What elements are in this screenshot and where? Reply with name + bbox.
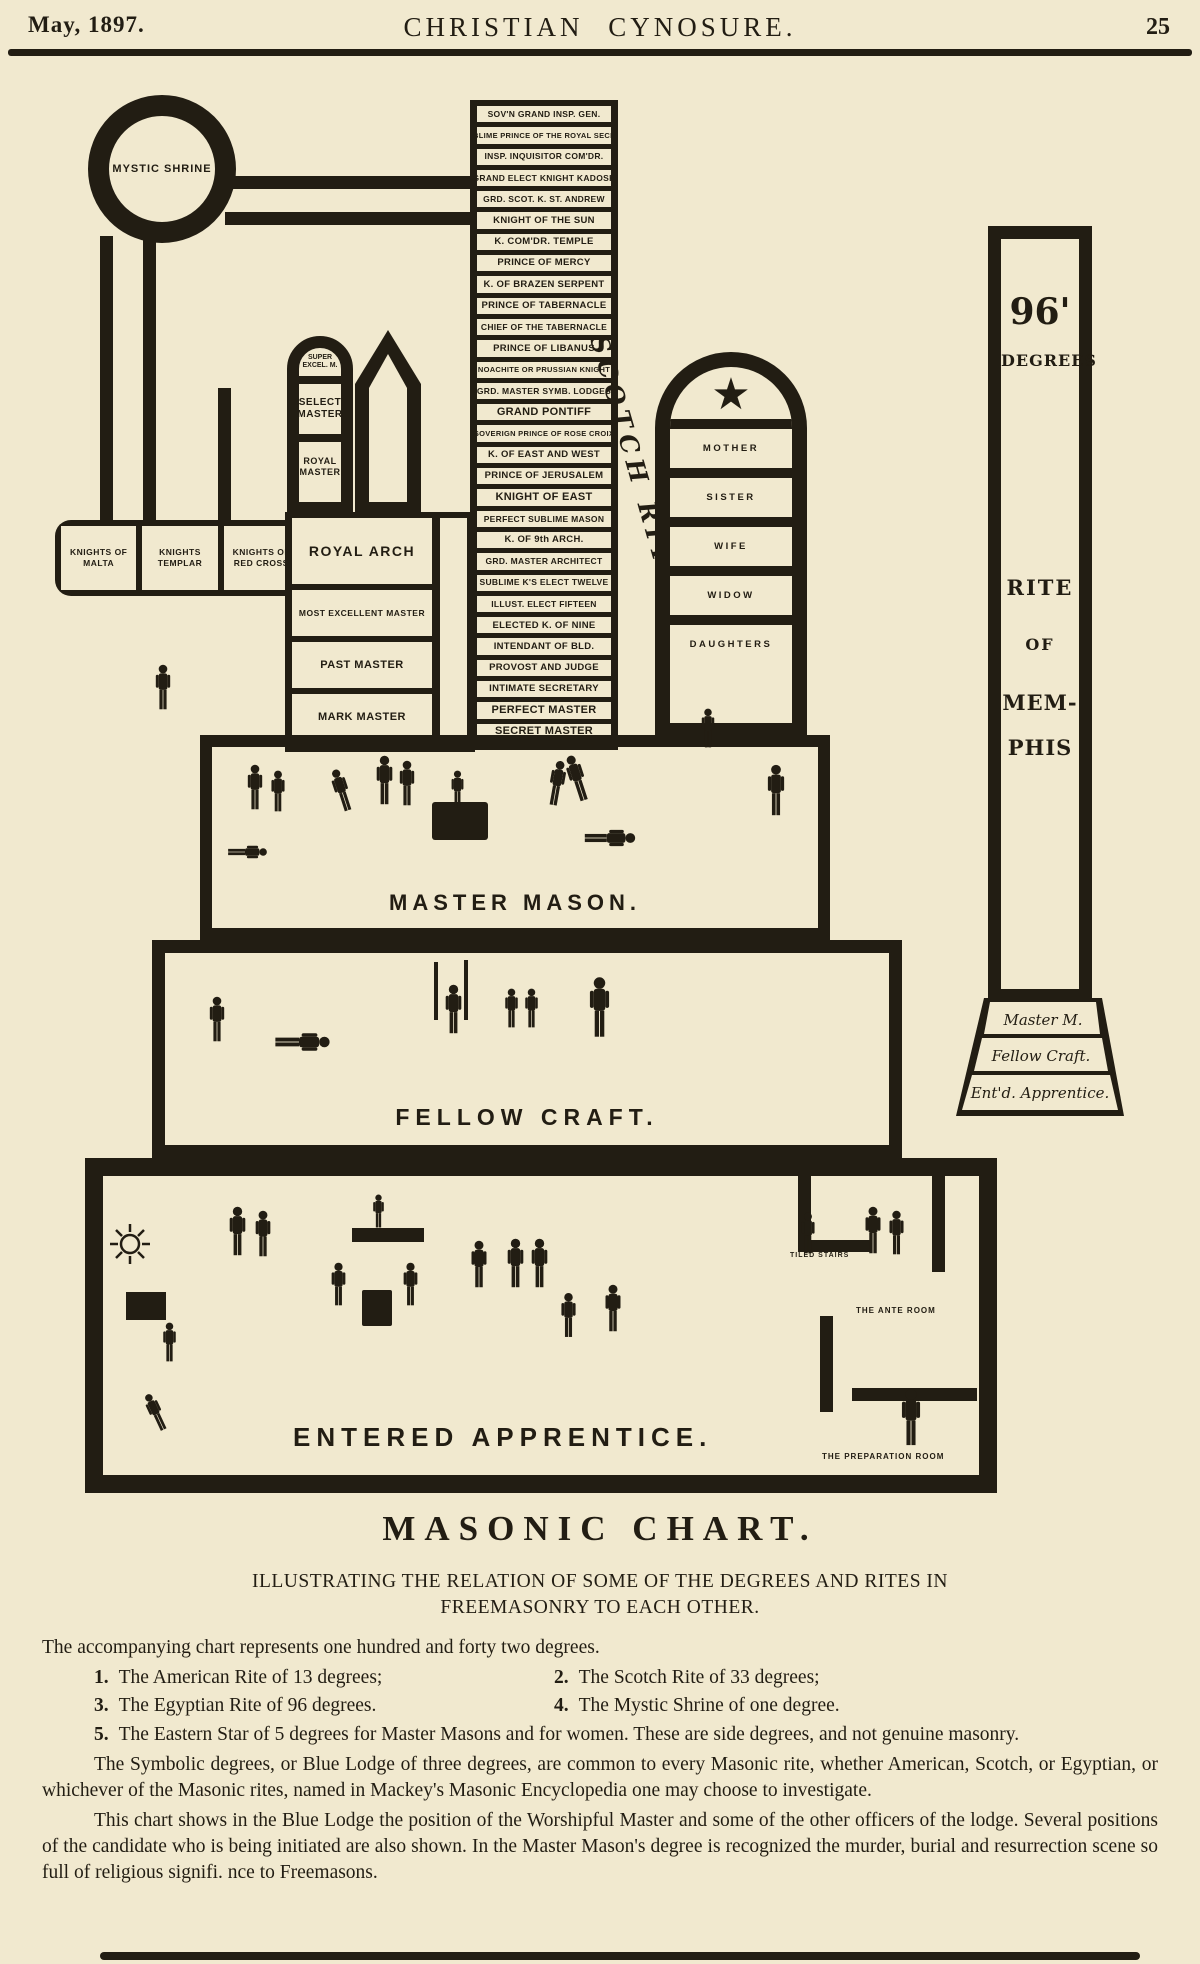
- sun-icon: [108, 1222, 152, 1266]
- item-number: 5.: [94, 1724, 119, 1745]
- person-figure-illustration: [604, 1284, 622, 1332]
- connector-bar: [218, 388, 231, 525]
- fellow-craft-level: FELLOW CRAFT.: [152, 940, 902, 1158]
- item-text: The American Rite of 13 degrees;: [119, 1667, 383, 1688]
- mystic-shrine-ring: MYSTIC SHRINE: [88, 95, 236, 243]
- publication-title: CHRISTIAN CYNOSURE.: [0, 12, 1200, 43]
- scotch-degree-box: GRD. MASTER SYMB. LODGES: [477, 383, 611, 399]
- scotch-degree-box: PERFECT MASTER: [477, 702, 611, 718]
- room-label-ante-room: THE ANTE ROOM: [856, 1306, 936, 1315]
- scotch-degree-box: ELECTED K. OF NINE: [477, 617, 611, 633]
- person-figure-illustration: [154, 664, 172, 710]
- body-paragraph: The Symbolic degrees, or Blue Lodge of t…: [42, 1752, 1158, 1804]
- base-step-label: Master M.: [1003, 1011, 1083, 1029]
- room-wall: [820, 1316, 833, 1412]
- eastern-star-degree-box: SISTER: [670, 468, 792, 517]
- connector-bar: [225, 176, 470, 189]
- degree-box: PAST MASTER: [292, 642, 432, 688]
- lying-figure-illustration: [275, 1032, 331, 1053]
- scotch-rite-tower: SOV'N GRAND INSP. GEN.SUBLIME PRINCE OF …: [470, 100, 618, 750]
- eastern-star-degree-box: MOTHER: [670, 419, 792, 468]
- scotch-degree-box: INSP. INQUISITOR COM'DR.: [477, 149, 611, 165]
- item-number: 2.: [554, 1667, 579, 1688]
- rite-list: 1.The American Rite of 13 degrees; 2.The…: [42, 1663, 1158, 1719]
- scotch-degree-box: PERFECT SUBLIME MASON: [477, 511, 611, 527]
- person-figure-illustration: [270, 770, 286, 812]
- item-number: 3.: [94, 1695, 119, 1716]
- scotch-degree-box: GRD. MASTER ARCHITECT: [477, 553, 611, 569]
- master-mason-label: MASTER MASON.: [212, 890, 818, 916]
- person-figure-illustration: [375, 755, 394, 805]
- memphis-word-mem: MEM-: [1001, 690, 1079, 715]
- column-prop-illustration: [434, 962, 438, 1020]
- knight-degree-box: KNIGHTS TEMPLAR: [142, 526, 217, 590]
- header-rule: [8, 49, 1192, 56]
- lectern-illustration: [362, 1290, 392, 1326]
- scotch-degree-box: K. COM'DR. TEMPLE: [477, 234, 611, 250]
- memphis-word-phis: PHIS: [1001, 735, 1079, 760]
- fellow-craft-label: FELLOW CRAFT.: [165, 1104, 889, 1131]
- mystic-shrine-label: MYSTIC SHRINE: [112, 163, 211, 175]
- scotch-degree-box: GRD. SCOT. K. ST. ANDREW: [477, 191, 611, 207]
- memphis-degree-count: 96': [1001, 291, 1079, 333]
- scotch-degree-box: CHIEF OF THE TABERNACLE: [477, 319, 611, 335]
- page-number: 25: [1146, 14, 1170, 41]
- scotch-degree-box: INTENDANT OF BLD.: [477, 638, 611, 654]
- person-figure-illustration: [766, 764, 786, 816]
- rite-list-item: 2.The Scotch Rite of 33 degrees;: [554, 1665, 1158, 1691]
- column-prop-illustration: [464, 960, 468, 1020]
- panel-strip: [440, 518, 467, 746]
- person-figure-illustration: [208, 996, 226, 1042]
- scotch-degree-box: KNIGHT OF EAST: [477, 489, 611, 505]
- intro-sentence: The accompanying chart represents one hu…: [42, 1635, 1158, 1661]
- scotch-degree-box: INTIMATE SECRETARY: [477, 681, 611, 697]
- person-figure-illustration: [402, 1262, 419, 1306]
- item-text: The Mystic Shrine of one degree.: [579, 1695, 840, 1716]
- scotch-degree-box: PRINCE OF JERUSALEM: [477, 468, 611, 484]
- person-figure-illustration: [530, 1238, 549, 1288]
- person-figure-illustration: [700, 708, 716, 748]
- person-figure-illustration: [900, 1388, 922, 1446]
- steeple-illustration: [353, 328, 423, 518]
- entered-apprentice-level: ENTERED APPRENTICE.: [85, 1158, 997, 1493]
- royal-arch-box: ROYAL ARCH: [292, 518, 432, 584]
- item-text: The Egyptian Rite of 96 degrees.: [119, 1695, 377, 1716]
- scotch-degree-box: K. OF 9th ARCH.: [477, 532, 611, 548]
- scotch-degree-box: SOV'N GRAND INSP. GEN.: [477, 106, 611, 122]
- rite-list-item: 1.The American Rite of 13 degrees;: [94, 1665, 554, 1691]
- item-number: 4.: [554, 1695, 579, 1716]
- scotch-degree-box: SUBLIME PRINCE OF THE ROYAL SECRET: [477, 127, 611, 143]
- lying-figure-illustration: [584, 828, 636, 848]
- person-figure-illustration: [330, 1262, 347, 1306]
- memphis-degrees-word: DEGREES: [1001, 351, 1079, 370]
- degree-box: ROYAL MASTER: [299, 442, 341, 492]
- person-figure-illustration: [246, 764, 264, 810]
- room-label-tiled-stairs: TILED STAIRS: [790, 1252, 849, 1259]
- scotch-degree-box: SOVERIGN PRINCE OF ROSE CROIX: [477, 425, 611, 441]
- eastern-star-degrees: MOTHERSISTERWIFEWIDOWDAUGHTERS: [670, 419, 792, 664]
- council-column: SUPER EXCEL. M. SELECT MASTER ROYAL MAST…: [287, 336, 353, 514]
- person-figure-illustration: [372, 1194, 385, 1228]
- master-mason-level: MASTER MASON.: [200, 735, 830, 940]
- person-figure-illustration: [504, 988, 519, 1028]
- caption-block: MASONIC CHART. ILLUSTRATING THE RELATION…: [0, 1500, 1200, 1886]
- scotch-degree-box: ILLUST. ELECT FIFTEEN: [477, 596, 611, 612]
- person-figure-illustration: [588, 976, 611, 1038]
- room-wall: [932, 1176, 945, 1272]
- eastern-star-degree-box: WIFE: [670, 517, 792, 566]
- person-figure-illustration: [524, 988, 539, 1028]
- memphis-word-rite: RITE: [1001, 575, 1079, 600]
- rite-of-memphis-column: 96' DEGREES RITE OF MEM- PHIS: [988, 226, 1092, 1002]
- eastern-star-degree-box: WIDOW: [670, 566, 792, 615]
- person-figure-illustration: [398, 760, 416, 806]
- person-figure-illustration: [864, 1206, 882, 1254]
- scan-edge-artifact: [100, 1952, 1140, 1960]
- scotch-degree-box: PROVOST AND JUDGE: [477, 660, 611, 676]
- scanned-page: May, 1897. CHRISTIAN CYNOSURE. 25 MYSTIC…: [0, 0, 1200, 1964]
- body-paragraph: This chart shows in the Blue Lodge the p…: [42, 1808, 1158, 1886]
- scotch-degree-box: GRAND PONTIFF: [477, 404, 611, 420]
- memphis-word-of: OF: [1001, 635, 1079, 654]
- scotch-degree-box: SUBLIME K'S ELECT TWELVE: [477, 575, 611, 591]
- rite-list-item: 4.The Mystic Shrine of one degree.: [554, 1693, 1158, 1719]
- person-figure-illustration: [560, 1292, 577, 1338]
- person-figure-illustration: [888, 1210, 905, 1255]
- item-number: 1.: [94, 1667, 119, 1688]
- item-text: The Eastern Star of 5 degrees for Master…: [119, 1724, 1020, 1745]
- lying-figure-illustration: [228, 845, 268, 860]
- chart-title: MASONIC CHART.: [42, 1506, 1158, 1553]
- connector-bar: [100, 236, 113, 526]
- person-figure-illustration: [470, 1240, 488, 1288]
- person-figure-illustration: [450, 770, 465, 808]
- pedestal-illustration: [352, 1228, 424, 1242]
- degree-box: MOST EXCELLENT MASTER: [292, 590, 432, 636]
- lower-degrees: MOST EXCELLENT MASTERPAST MASTERMARK MAS…: [292, 590, 432, 746]
- scotch-degree-box: PRINCE OF MERCY: [477, 255, 611, 271]
- rite-list-item: 3.The Egyptian Rite of 96 degrees.: [94, 1693, 554, 1719]
- scotch-degree-box: K. OF EAST AND WEST: [477, 447, 611, 463]
- person-figure-illustration: [254, 1210, 272, 1257]
- knights-row: KNIGHTS OF MALTAKNIGHTS TEMPLARKNIGHTS O…: [55, 520, 305, 596]
- person-figure-illustration: [800, 1212, 816, 1254]
- star-icon: ★: [670, 367, 792, 419]
- altar-illustration: [126, 1292, 166, 1320]
- rite-list-item: 5.The Eastern Star of 5 degrees for Mast…: [42, 1722, 1158, 1748]
- degree-box: SELECT MASTER: [299, 384, 341, 442]
- chart-subtitle-line1: ILLUSTRATING THE RELATION OF SOME OF THE…: [42, 1569, 1158, 1595]
- eastern-star-degree-box: DAUGHTERS: [670, 615, 792, 664]
- connector-bar: [143, 236, 156, 526]
- degree-box: MARK MASTER: [292, 694, 432, 740]
- connector-bar: [225, 212, 470, 225]
- room-label-preparation-room: THE PREPARATION ROOM: [822, 1452, 944, 1461]
- person-figure-illustration: [506, 1238, 525, 1288]
- base-step-label: Ent'd. Apprentice.: [970, 1084, 1110, 1102]
- person-figure-illustration: [162, 1322, 177, 1362]
- person-figure-illustration: [228, 1206, 247, 1256]
- entered-apprentice-label: ENTERED APPRENTICE.: [293, 1422, 712, 1453]
- scotch-degree-box: K. OF BRAZEN SERPENT: [477, 276, 611, 292]
- item-text: The Scotch Rite of 33 degrees;: [579, 1667, 820, 1688]
- scotch-degree-box: PRINCE OF TABERNACLE: [477, 298, 611, 314]
- scotch-degree-box: KNIGHT OF THE SUN: [477, 212, 611, 228]
- eastern-star-arch: ★ MOTHERSISTERWIFEWIDOWDAUGHTERS: [655, 352, 807, 738]
- degree-box: SUPER EXCEL. M.: [299, 348, 341, 384]
- scotch-degree-box: GRAND ELECT KNIGHT KADOSH: [477, 170, 611, 186]
- base-step-label: Fellow Craft.: [991, 1047, 1091, 1065]
- knight-degree-box: KNIGHTS OF MALTA: [61, 526, 136, 590]
- memphis-base-steps: Master M. Fellow Craft. Ent'd. Apprentic…: [948, 998, 1138, 1116]
- chart-subtitle-line2: FREEMASONRY TO EACH OTHER.: [42, 1595, 1158, 1621]
- person-figure-illustration: [444, 984, 463, 1034]
